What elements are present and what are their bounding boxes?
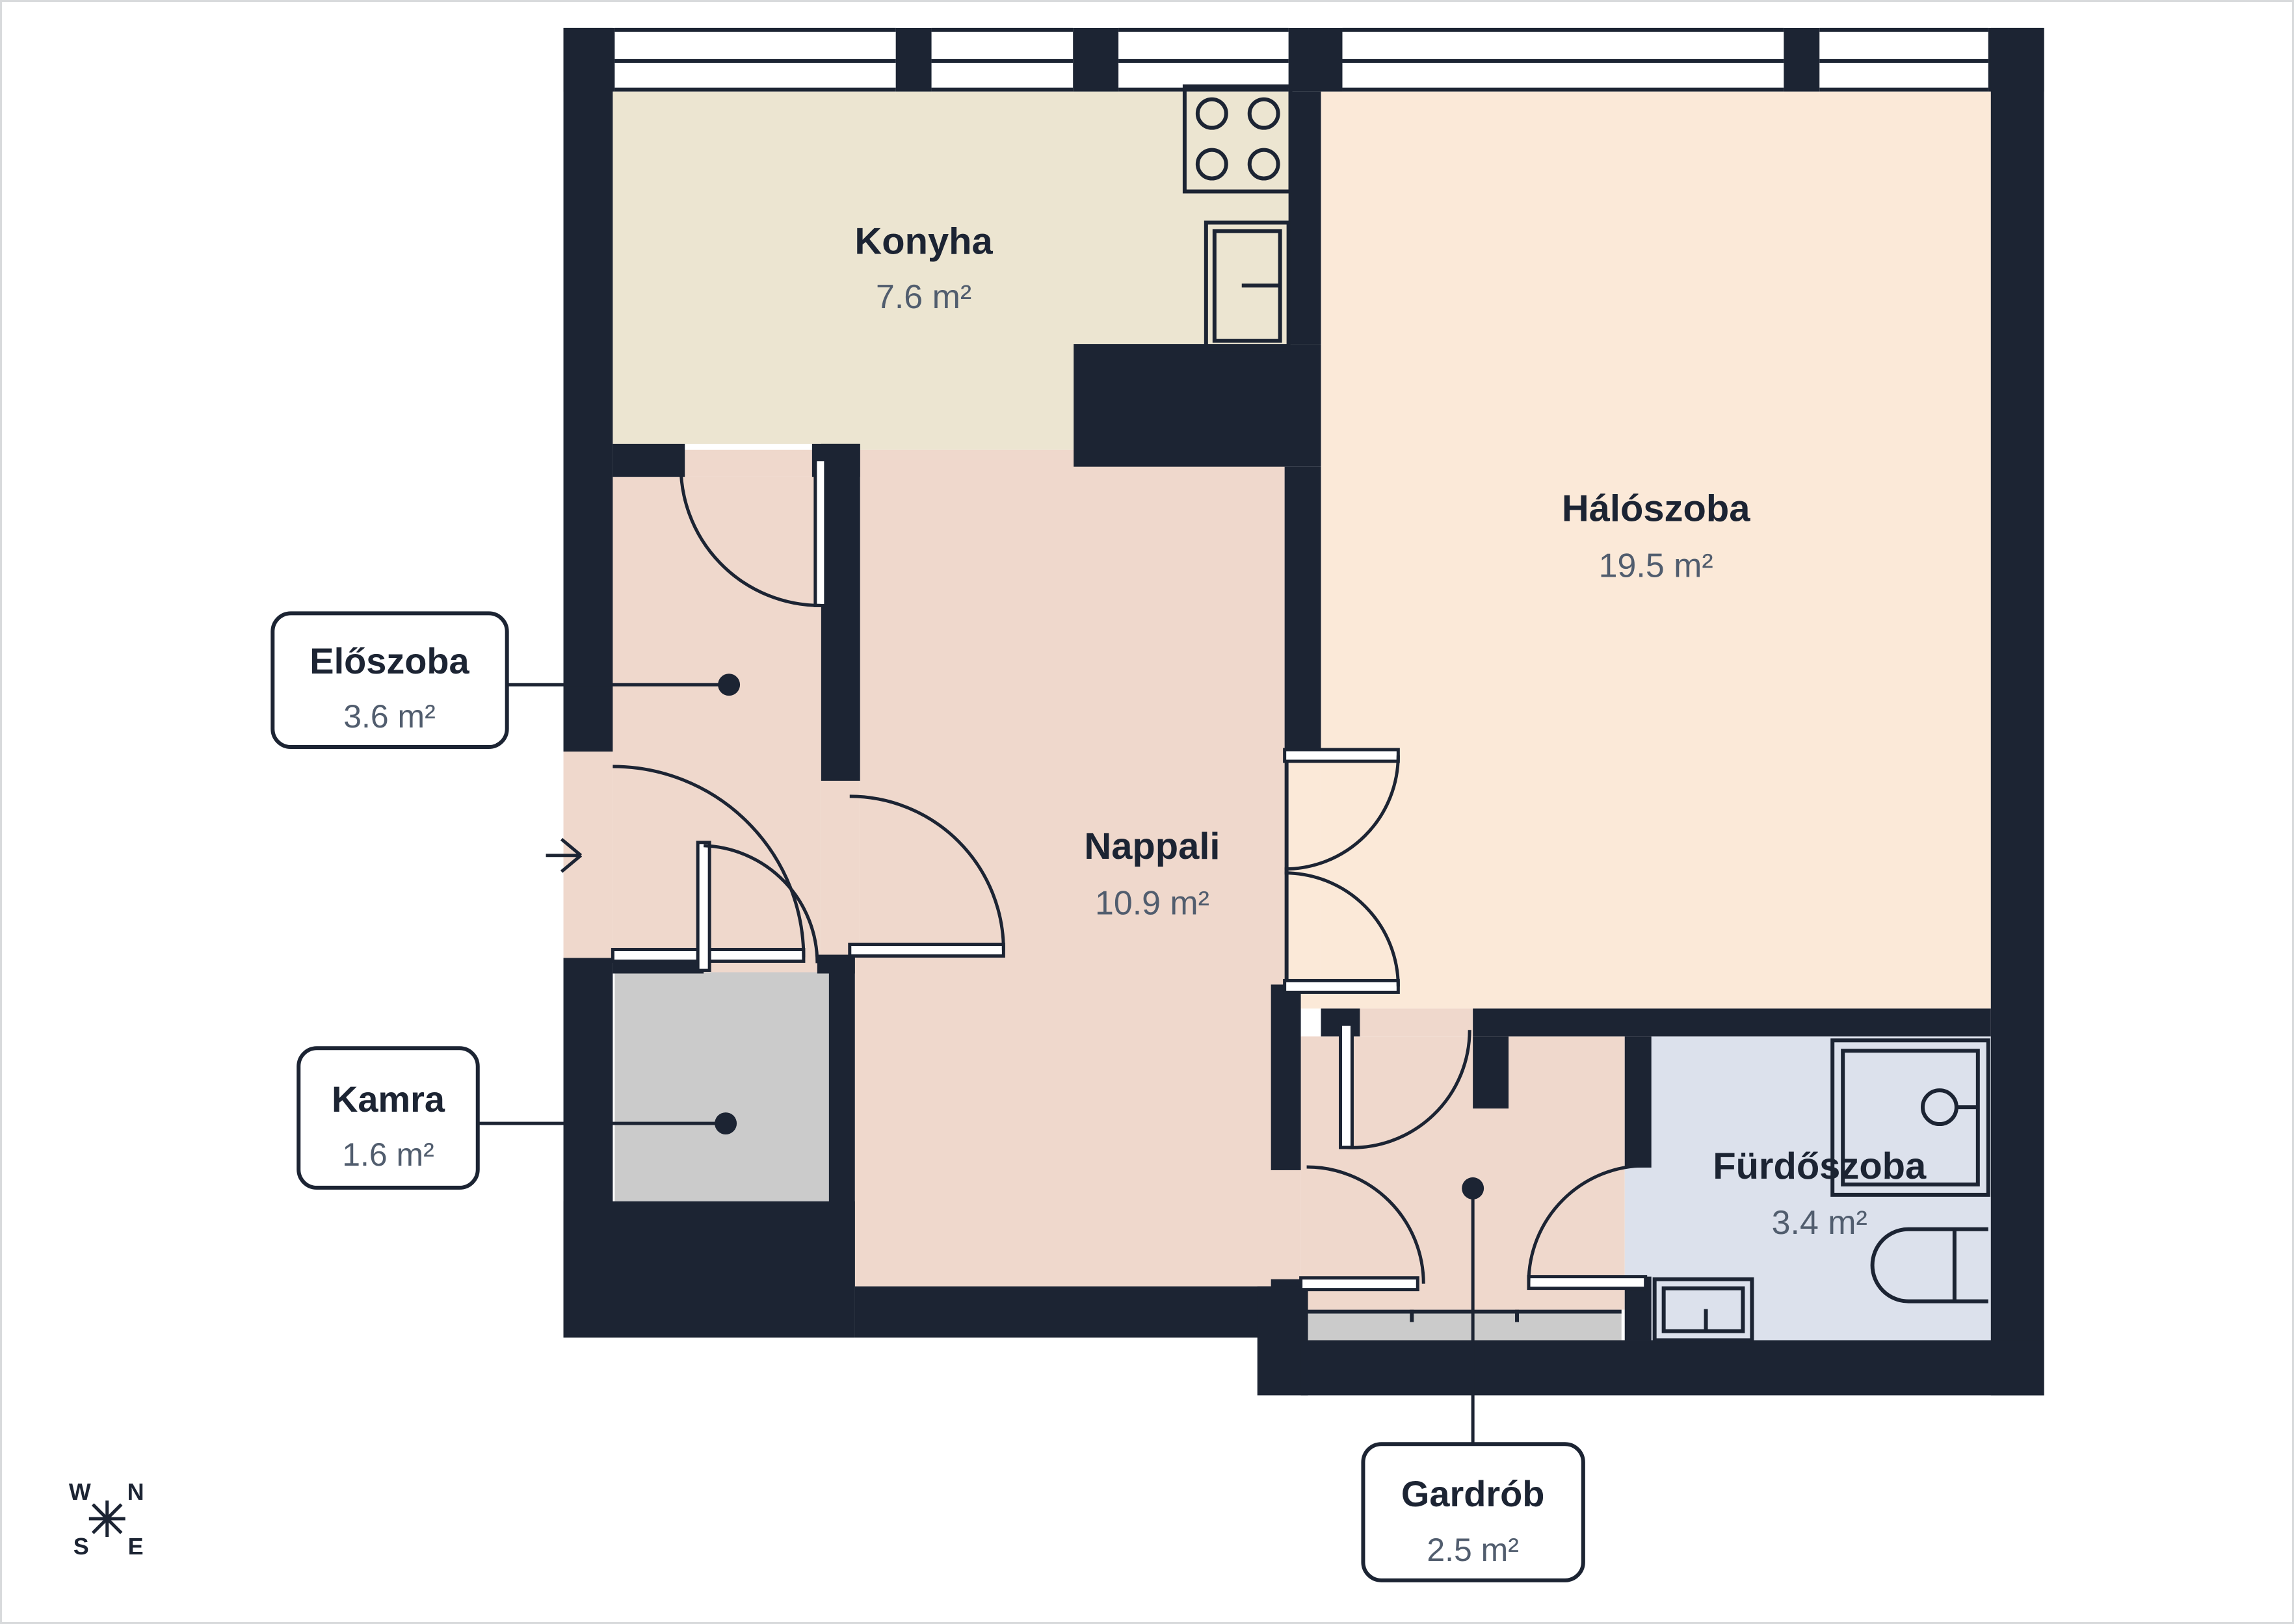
hallway-label: Előszoba [310, 640, 469, 681]
window [1118, 28, 1289, 92]
window [1819, 28, 1988, 92]
pantry-label: Kamra [332, 1079, 445, 1120]
pantry-floor [614, 972, 828, 1201]
hallway-area: 3.6 m² [343, 698, 435, 735]
compass-south: S [73, 1533, 89, 1560]
compass-west: W [69, 1478, 91, 1505]
window [1342, 28, 1784, 92]
floor-plan: Konyha 7.6 m² Hálószoba 19.5 m² Nappali … [2, 2, 2292, 1622]
living-room-floor [860, 450, 1285, 956]
living-room-area: 10.9 m² [1095, 885, 1209, 923]
bedroom-area: 19.5 m² [1599, 547, 1713, 584]
wardrobe-label: Gardrób [1401, 1473, 1544, 1514]
kitchen-label: Konyha [854, 220, 993, 262]
pantry-area: 1.6 m² [342, 1136, 434, 1173]
living-room-label: Nappali [1084, 826, 1220, 867]
window [614, 28, 895, 92]
bathroom-area: 3.4 m² [1772, 1204, 1867, 1242]
bathroom-label: Fürdőszoba [1713, 1146, 1927, 1187]
kitchen-area: 7.6 m² [876, 278, 971, 316]
bathroom-floor [1625, 1036, 1991, 1340]
bedroom-label: Hálószoba [1562, 488, 1750, 530]
compass-east: E [128, 1533, 144, 1560]
floor-plan-page: Konyha 7.6 m² Hálószoba 19.5 m² Nappali … [0, 0, 2294, 1624]
wardrobe-closet-strip [1301, 1310, 1622, 1341]
compass-rose-icon: W N S E [69, 1478, 144, 1560]
wardrobe-area: 2.5 m² [1427, 1532, 1518, 1568]
compass-north: N [127, 1478, 144, 1505]
window [932, 28, 1074, 92]
